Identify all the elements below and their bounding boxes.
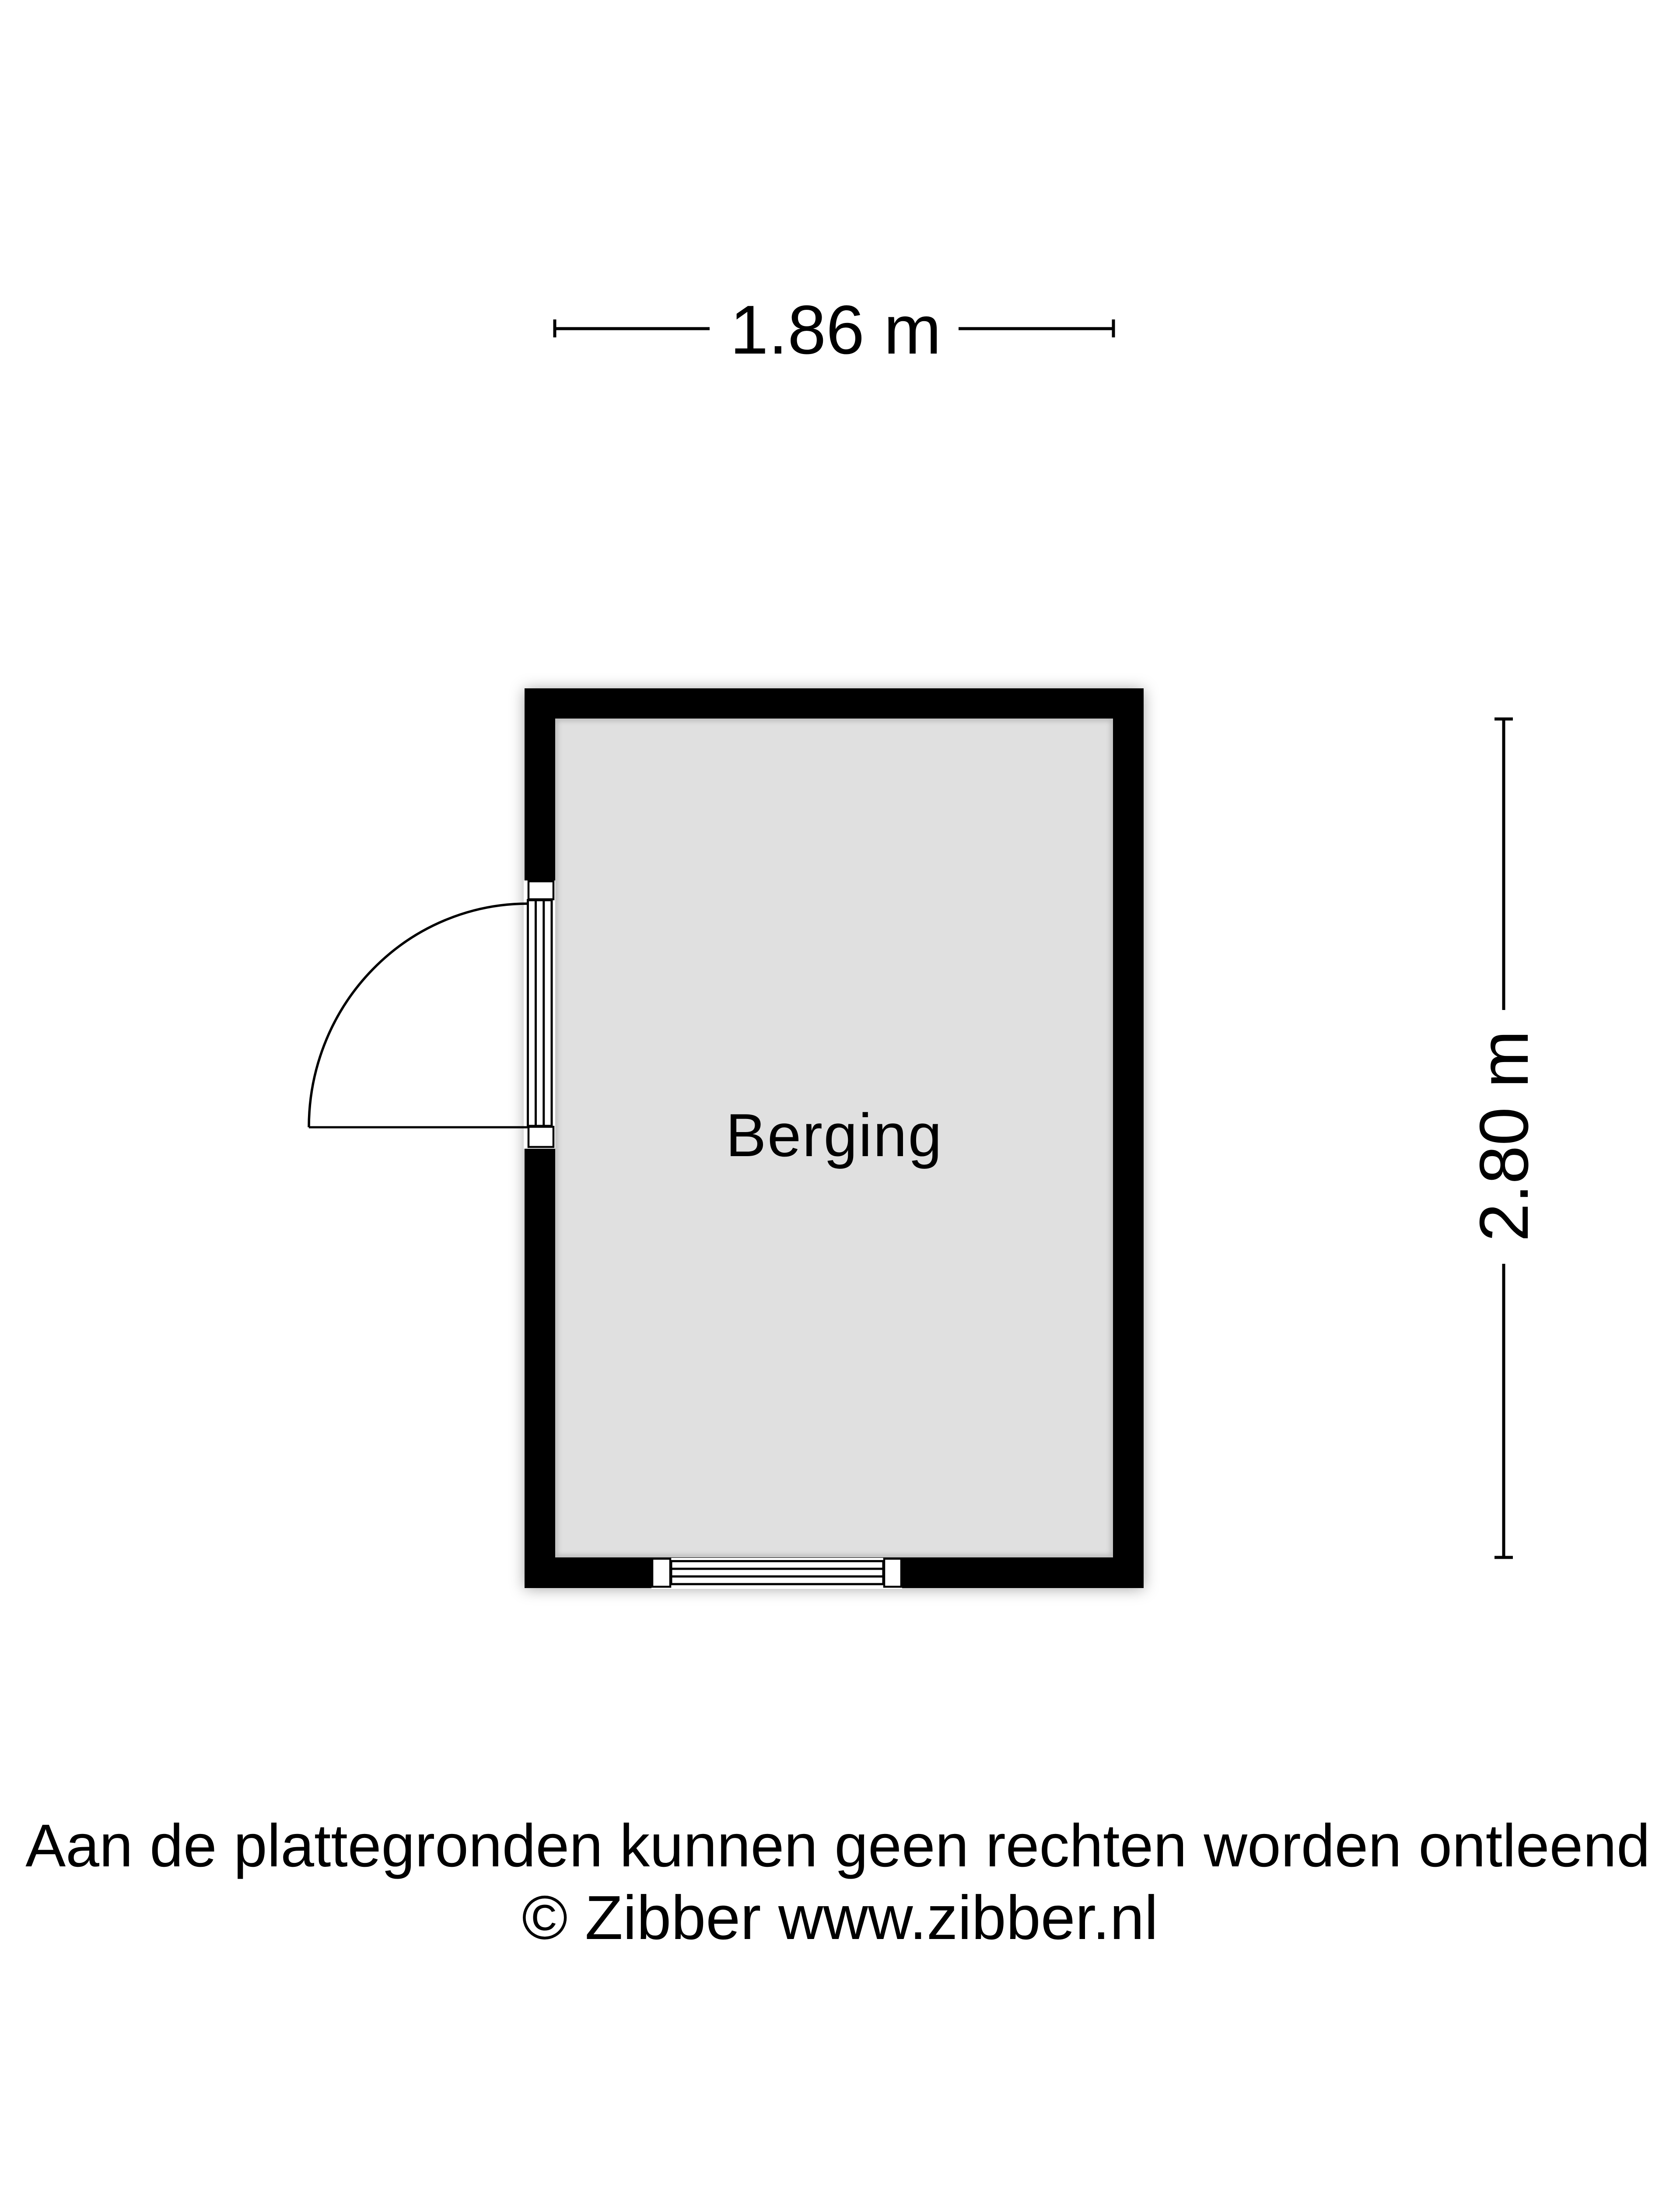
svg-text:Berging: Berging bbox=[726, 1101, 943, 1169]
svg-text:© Zibber www.zibber.nl: © Zibber www.zibber.nl bbox=[522, 1883, 1158, 1953]
svg-text:1.86 m: 1.86 m bbox=[730, 291, 941, 368]
svg-text:Aan de plattegronden kunnen ge: Aan de plattegronden kunnen geen rechten… bbox=[25, 1812, 1650, 1879]
svg-text:2.80 m: 2.80 m bbox=[1466, 1030, 1543, 1241]
